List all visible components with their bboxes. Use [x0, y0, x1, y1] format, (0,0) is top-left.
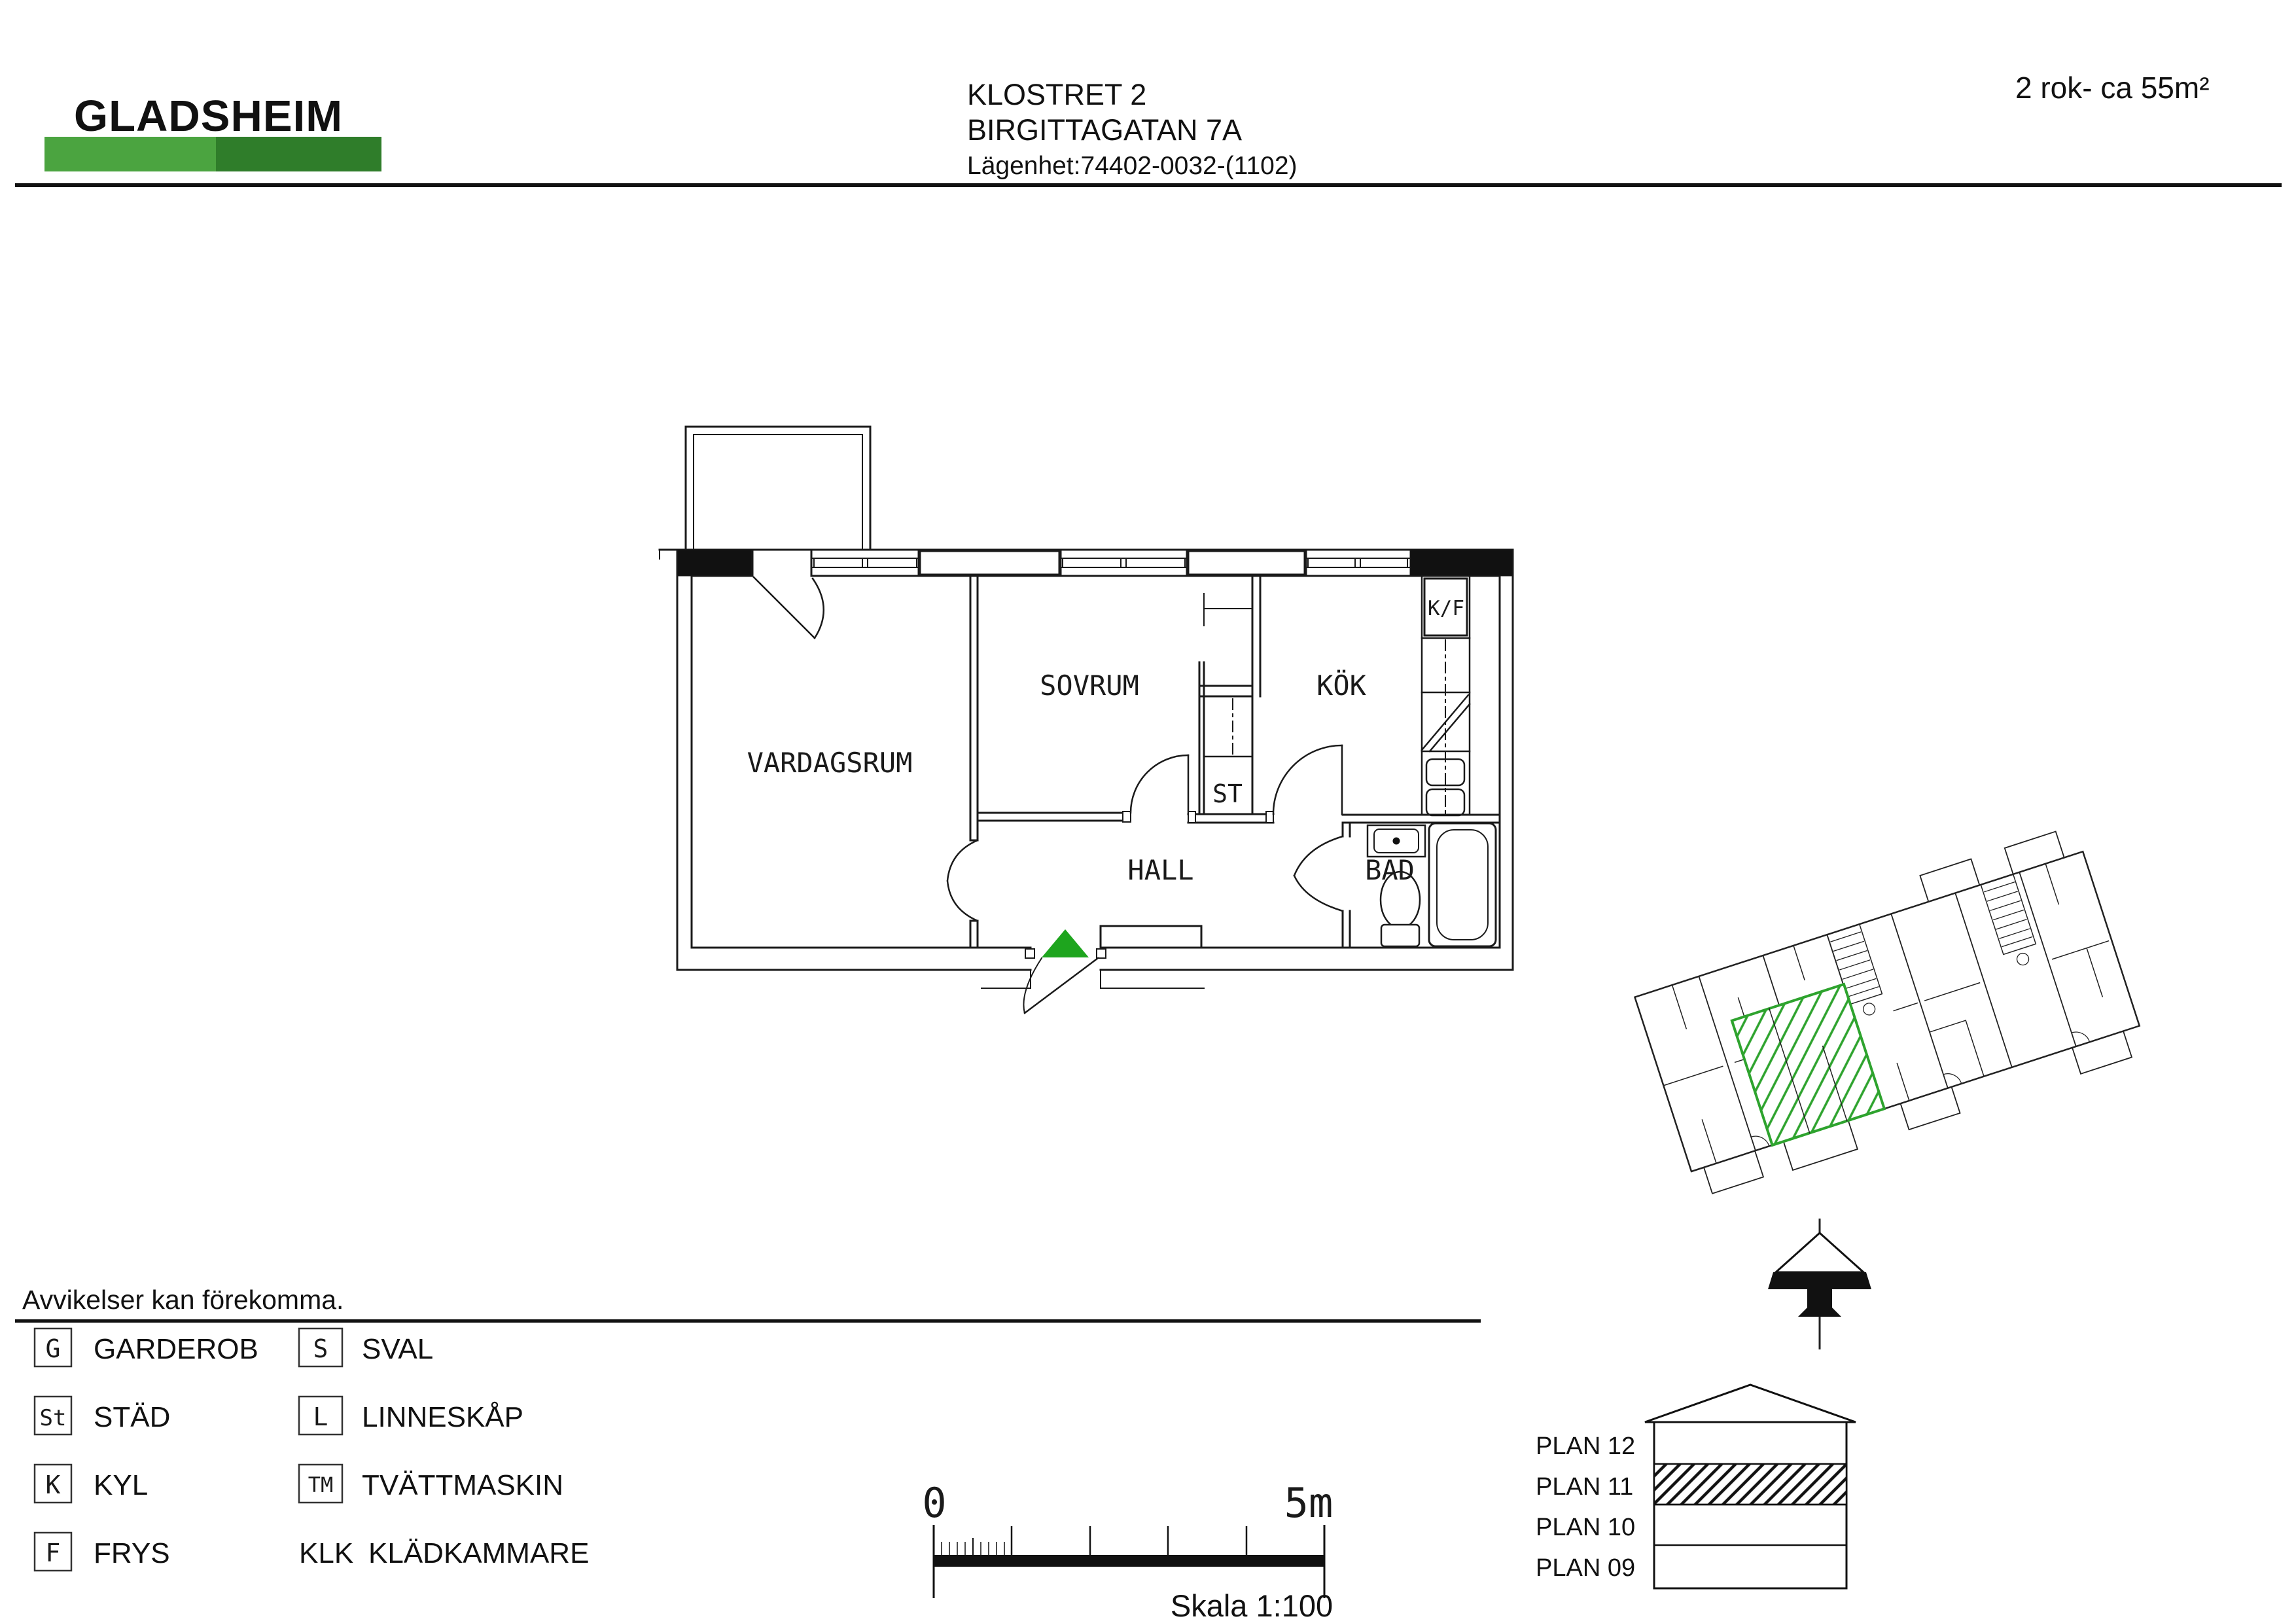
entrance-marker-triangle: [1042, 929, 1089, 957]
wall-pier: [919, 550, 1060, 575]
building-roof: [1645, 1385, 1856, 1422]
windows: [811, 558, 1410, 567]
scale-bar: 0 5m Skala 1:100: [922, 1479, 1333, 1623]
legend-abbr-linneskap: L: [313, 1402, 328, 1431]
legend-abbr-kladkammare: KLK: [299, 1537, 353, 1569]
legend-abbr-kyl: K: [46, 1471, 61, 1499]
logo-bar-dark: [216, 137, 381, 171]
floor-label-plan-10: PLAN 10: [1536, 1514, 1635, 1541]
label-kitchen: KÖK: [1316, 669, 1367, 702]
wall-hall-bedroom: [978, 755, 1188, 822]
legend-label-kladkammare: KLÄDKAMMARE: [368, 1537, 589, 1569]
north-arrow: [1768, 1219, 1871, 1349]
header: GLADSHEIM KLOSTRET 2 BIRGITTAGATAN 7A Lä…: [15, 71, 2282, 187]
legend-label-frys: FRYS: [94, 1537, 170, 1569]
site-overview-plan: [1626, 825, 2148, 1200]
header-apartment-number: Lägenhet:74402-0032-(1102): [967, 152, 1298, 180]
legend-label-kyl: KYL: [94, 1469, 148, 1501]
scale-end-label: 5m: [1284, 1479, 1333, 1527]
wall-pier: [1188, 550, 1305, 575]
room-labels: VARDAGSRUM SOVRUM KÖK HALL BAD ST K/F: [747, 597, 1464, 886]
washbasin: [1368, 825, 1425, 857]
balcony: [686, 427, 870, 550]
scale-start-label: 0: [922, 1479, 946, 1527]
floor-label-plan-11: PLAN 11: [1536, 1473, 1633, 1501]
legend-label-garderob: GARDEROB: [94, 1333, 258, 1365]
legend-section: Avvikelser kan förekomma. G GARDEROB St …: [15, 1285, 1481, 1571]
scale-caption: Skala 1:100: [1171, 1588, 1333, 1623]
floor-label-plan-09: PLAN 09: [1536, 1554, 1635, 1582]
legend-abbr-stad: St: [40, 1405, 67, 1431]
bathtub: [1429, 823, 1496, 946]
legend-abbr-frys: F: [46, 1539, 61, 1567]
label-bathroom: BAD: [1365, 854, 1415, 886]
scale-bar-rule: [934, 1555, 1324, 1567]
kitchen-doorway: [1273, 745, 1342, 814]
legend-rule: [15, 1319, 1481, 1323]
header-address: BIRGITTAGATAN 7A: [967, 113, 1242, 147]
legend-label-stad: STÄD: [94, 1401, 170, 1433]
logo-bar-light: [44, 137, 216, 171]
label-cleaning-closet: ST: [1212, 779, 1243, 808]
legend-abbr-garderob: G: [46, 1334, 61, 1363]
entry-door-leaf: [1025, 958, 1098, 1013]
floor-label-plan-12: PLAN 12: [1536, 1433, 1635, 1460]
wall-living-bedroom: [947, 576, 978, 948]
floor-plan: VARDAGSRUM SOVRUM KÖK HALL BAD ST K/F: [660, 427, 1513, 1013]
legend-label-sval: SVAL: [362, 1333, 433, 1365]
legend-abbr-sval: S: [313, 1334, 328, 1363]
label-hall: HALL: [1127, 854, 1193, 886]
legend-label-tvattmaskin: TVÄTTMASKIN: [362, 1469, 563, 1501]
legend-label-linneskap: LINNESKÅP: [362, 1401, 523, 1433]
header-rule: [15, 183, 2282, 187]
balcony-door: [752, 550, 824, 638]
legend-column-2: S SVAL L LINNESKÅP TM TVÄTTMASKIN KLK KL…: [299, 1329, 589, 1569]
disclaimer-text: Avvikelser kan förekomma.: [22, 1285, 344, 1315]
header-project: KLOSTRET 2: [967, 78, 1146, 111]
label-living-room: VARDAGSRUM: [747, 747, 913, 779]
page-canvas: GLADSHEIM KLOSTRET 2 BIRGITTAGATAN 7A Lä…: [0, 0, 2296, 1623]
legend-abbr-tvattmaskin: TM: [308, 1472, 334, 1497]
logo-text: GLADSHEIM: [74, 92, 343, 141]
label-bedroom: SOVRUM: [1040, 669, 1139, 702]
header-apartment-size: 2 rok- ca 55m²: [2015, 71, 2210, 105]
label-fridge-freezer: K/F: [1428, 597, 1464, 620]
highlighted-floor-band: [1654, 1464, 1846, 1505]
floor-selector: PLAN 12 PLAN 11 PLAN 10 PLAN 09: [1536, 1385, 1856, 1588]
legend-column-1: G GARDEROB St STÄD K KYL F FRYS: [35, 1329, 258, 1571]
